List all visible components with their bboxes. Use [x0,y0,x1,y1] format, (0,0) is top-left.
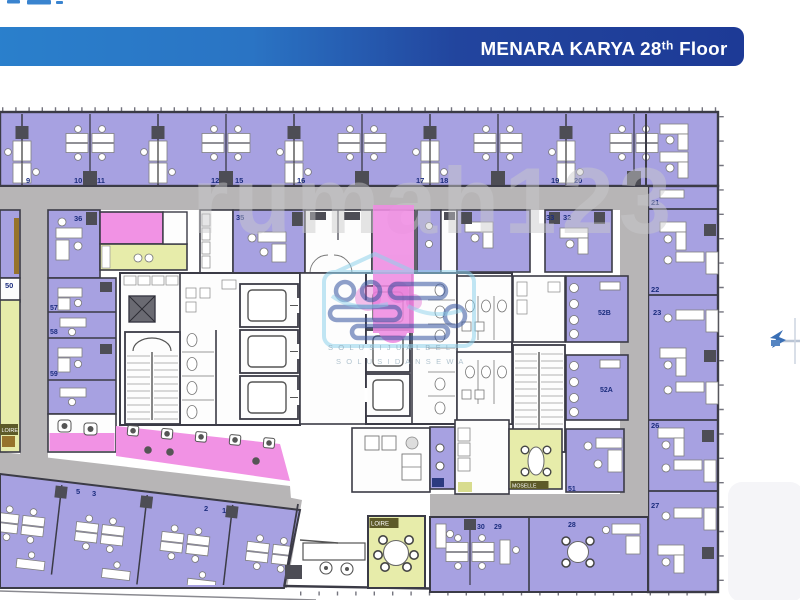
svg-text:58: 58 [50,329,58,336]
svg-text:2: 2 [204,504,208,513]
svg-text:rumah123: rumah123 [192,148,676,253]
svg-text:52B: 52B [598,310,611,317]
svg-text:5: 5 [76,487,80,496]
svg-text:11: 11 [97,176,105,185]
svg-text:22: 22 [651,285,659,294]
svg-text:26: 26 [651,421,659,430]
svg-text:59: 59 [50,371,58,378]
svg-text:LOIRE: LOIRE [2,428,19,434]
svg-text:23: 23 [653,308,661,317]
svg-text:9: 9 [26,176,30,185]
svg-text:52A: 52A [600,387,613,394]
svg-text:28: 28 [568,522,576,529]
svg-text:36: 36 [74,214,82,223]
svg-text:S O L U S I D A N S E W A: S O L U S I D A N S E W A [336,357,465,366]
svg-text:3: 3 [92,489,96,498]
svg-text:S O L U S I J U A L B E L: S O L U S I J U A L B E L I [328,343,459,352]
svg-text:27: 27 [651,501,659,510]
svg-text:MOSELLE: MOSELLE [512,484,537,490]
svg-text:51: 51 [568,486,576,493]
svg-text:50: 50 [5,281,13,290]
svg-text:29: 29 [494,524,502,531]
svg-text:MENARA KARYA 28th Floor: MENARA KARYA 28th Floor [480,38,728,59]
svg-text:10: 10 [74,176,82,185]
svg-text:30: 30 [477,524,485,531]
svg-text:57: 57 [50,305,58,312]
svg-text:LOIRE: LOIRE [371,522,389,528]
svg-text:1: 1 [222,506,226,515]
